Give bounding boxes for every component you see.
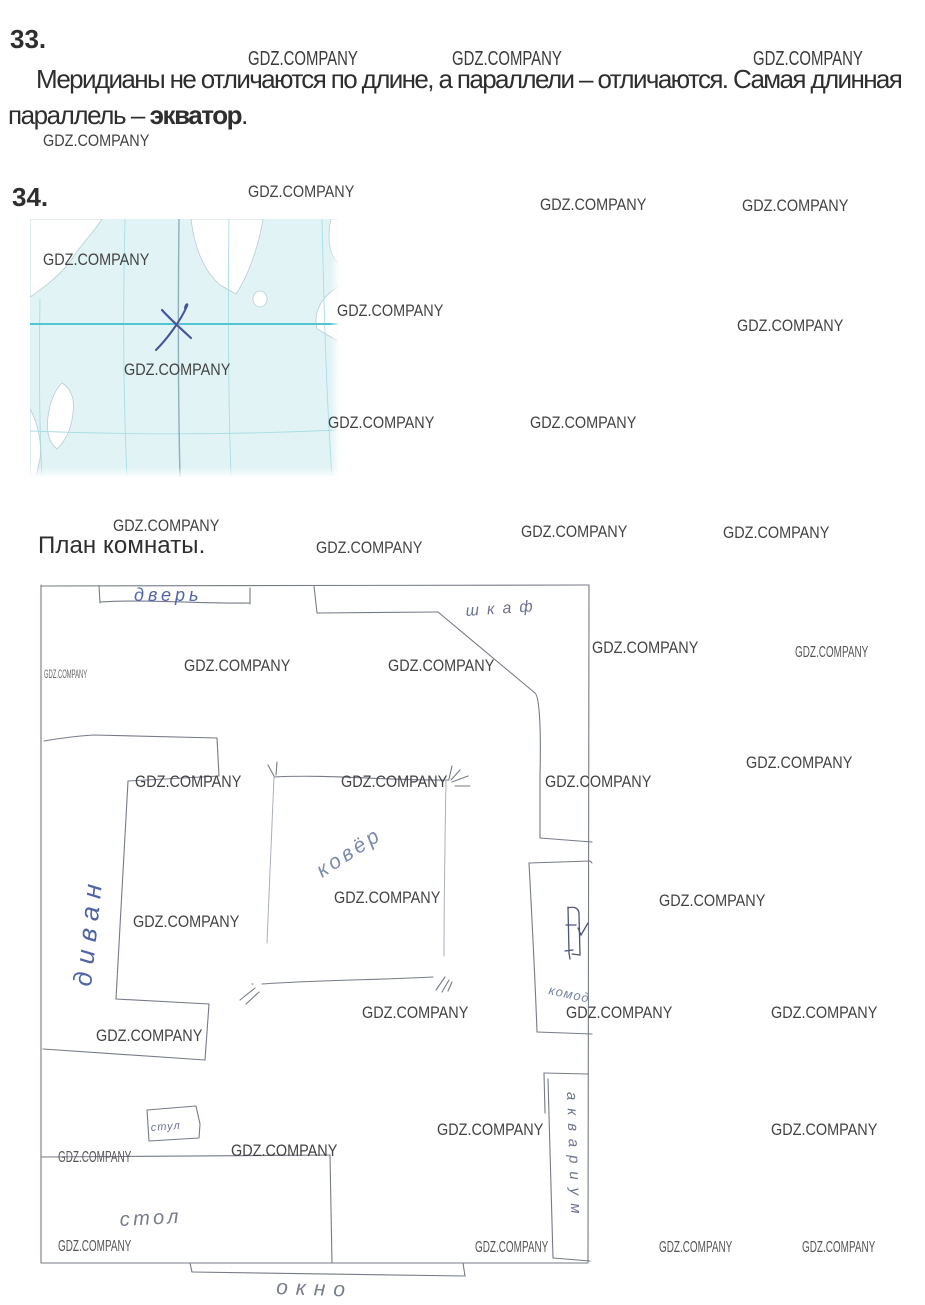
svg-text:аквариум: аквариум [563, 1092, 585, 1222]
svg-text:окно: окно [276, 1276, 354, 1297]
svg-text:шкаф: шкаф [465, 598, 541, 620]
svg-text:стол: стол [119, 1206, 182, 1231]
svg-text:диван: диван [67, 874, 108, 987]
svg-text:комод: комод [547, 982, 591, 1005]
svg-text:стул: стул [150, 1120, 181, 1134]
svg-text:дверь: дверь [134, 585, 202, 605]
svg-text:ковёр: ковёр [312, 823, 386, 882]
